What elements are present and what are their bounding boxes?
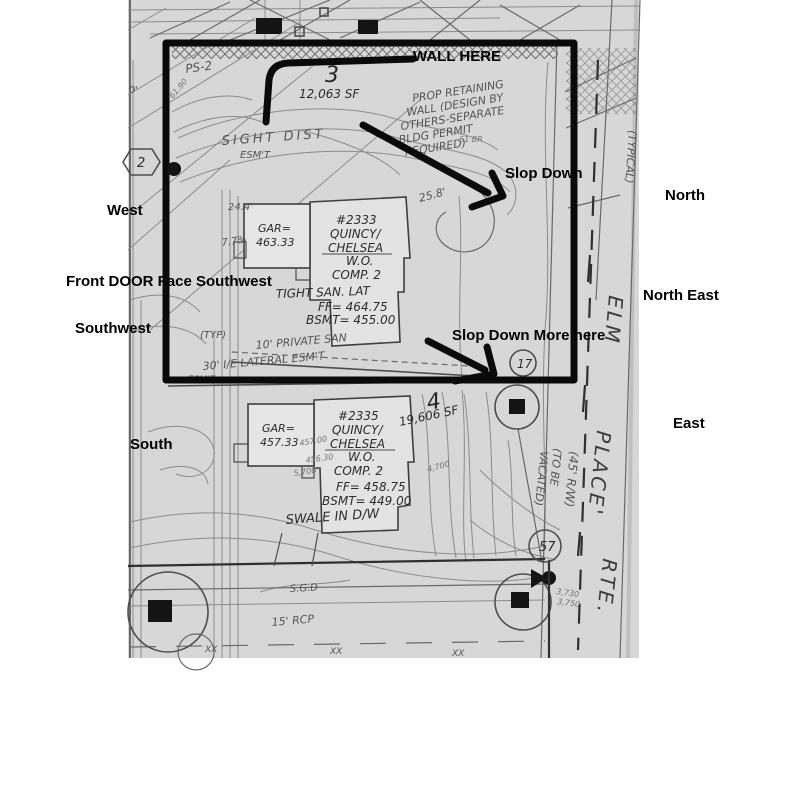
house-2333-address: #2333 — [336, 213, 377, 227]
house-2333-ff: FF= 464.75 — [318, 300, 388, 314]
garage-2333-label1: GAR= — [258, 222, 291, 235]
label-slop-down: Slop Down — [505, 165, 583, 182]
structure-square-icon — [511, 592, 529, 608]
house-2335-model3: W.O. — [348, 450, 375, 464]
house-2333-model4: COMP. 2 — [332, 268, 381, 282]
boundary-dot — [167, 162, 181, 176]
dim-24-4: 24.4' — [228, 202, 253, 213]
house-2333-bsmt: BSMT= 455.00 — [306, 313, 396, 327]
site-plan-screenshot: PS-2 3 12,063 SF SIGHT DIST ESM'T 0' 61.… — [0, 0, 800, 800]
label-slop-down-more: Slop Down More here — [452, 327, 605, 344]
structure-square-icon — [148, 600, 172, 622]
house-2335-model2: CHELSEA — [330, 437, 385, 451]
label-sgd: S.G.D — [290, 583, 319, 595]
compass-east: East — [673, 415, 705, 432]
utility-box-icon — [358, 20, 378, 34]
lot2-number: 2 — [137, 156, 145, 171]
utility-box-icon — [256, 18, 282, 34]
house-2333-model2: CHELSEA — [328, 241, 383, 255]
fence-xx: XX — [204, 645, 218, 655]
garage-2335-label2: 457.33 — [260, 436, 299, 449]
garage-2335-label1: GAR= — [262, 422, 295, 435]
compass-south: South — [130, 436, 173, 453]
house-2335-address: #2335 — [338, 409, 379, 423]
compass-north: North — [665, 187, 705, 204]
circle17-label: 17 — [517, 357, 533, 371]
label-front-door: Front DOOR Face Southwest — [66, 273, 272, 290]
fence-xx: XX — [451, 649, 465, 659]
house-2333-model3: W.O. — [346, 254, 373, 268]
garage-2335 — [248, 404, 314, 466]
house-2335-model1: QUINCY/ — [332, 423, 384, 437]
lot3-area: 12,063 SF — [299, 87, 360, 101]
house-2335-ff: FF= 458.75 — [336, 480, 406, 494]
circle57-label: 57 — [539, 540, 556, 555]
note-61br: 61 BR — [459, 135, 483, 144]
label-wall-here: WALL HERE — [413, 48, 501, 65]
site-plan-svg: PS-2 3 12,063 SF SIGHT DIST ESM'T 0' 61.… — [0, 0, 800, 800]
house-2335-model4: COMP. 2 — [334, 464, 383, 478]
compass-west: West — [107, 202, 143, 219]
label-sight-esmt: ESM'T — [240, 150, 271, 161]
inlet-square-icon — [509, 399, 525, 414]
garage-2333-label2: 463.33 — [256, 236, 295, 249]
label-typ: (TYP) — [200, 330, 226, 341]
compass-southwest: Southwest — [75, 320, 151, 337]
house-2335-bsmt: BSMT= 449.00 — [322, 494, 412, 508]
compass-north-east: North East — [643, 287, 719, 304]
house-2333-model1: QUINCY/ — [330, 227, 382, 241]
label-dim0: 0' — [129, 85, 138, 96]
fence-xx: XX — [329, 647, 343, 657]
lot3-number: 3 — [325, 63, 339, 88]
